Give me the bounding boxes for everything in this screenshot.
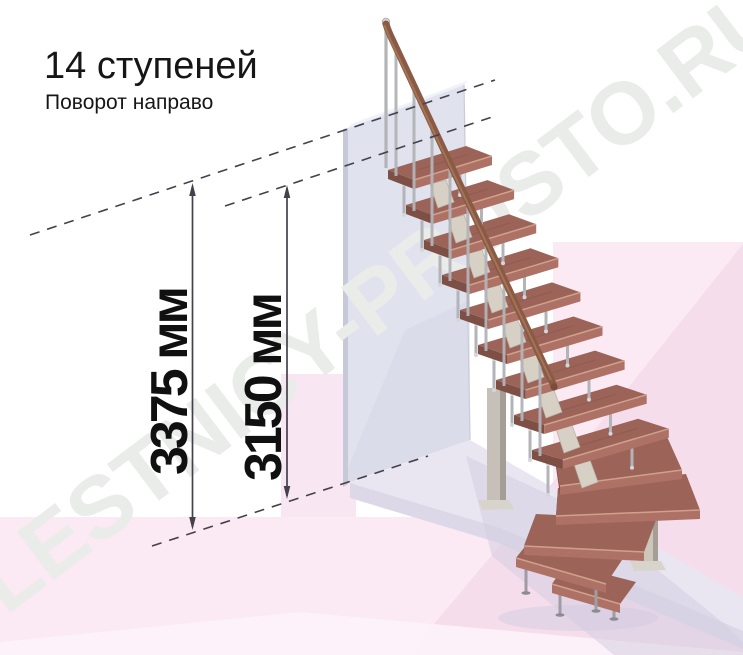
joint (609, 432, 613, 436)
column-a-base (478, 500, 514, 510)
page-subtitle: Поворот направо (45, 91, 213, 114)
handrail-end-cap (550, 383, 557, 390)
joint (438, 283, 442, 287)
column-b-base (630, 561, 666, 571)
joint (510, 423, 514, 427)
joint (492, 388, 496, 392)
leg-foot (522, 591, 531, 594)
dimension-label-floor-to-top-step: 3150 мм (235, 295, 293, 481)
joint (456, 318, 460, 322)
page-title: 14 ступеней (44, 45, 258, 87)
leg-foot (592, 609, 601, 612)
column-a (487, 388, 500, 504)
joint (566, 364, 570, 368)
joint (587, 398, 591, 402)
joint (544, 329, 548, 333)
column-a-side (500, 388, 506, 503)
joint (420, 248, 424, 252)
stair-diagram: LESTNICY-PROSTO.RU 14 ступеней Поворот н… (0, 0, 743, 655)
bottom-step-shadow (498, 605, 658, 631)
leg-foot (556, 613, 565, 616)
dimension-label-overall-height: 3375 мм (141, 289, 199, 475)
joint (523, 295, 527, 299)
joint (546, 493, 550, 497)
joint (474, 353, 478, 357)
joint (528, 458, 532, 462)
leg-foot (610, 617, 619, 620)
joint (402, 213, 406, 217)
joint (501, 261, 505, 265)
stair-diagram-page: LESTNICY-PROSTO.RU 14 ступеней Поворот н… (0, 0, 743, 655)
joint (630, 466, 634, 470)
